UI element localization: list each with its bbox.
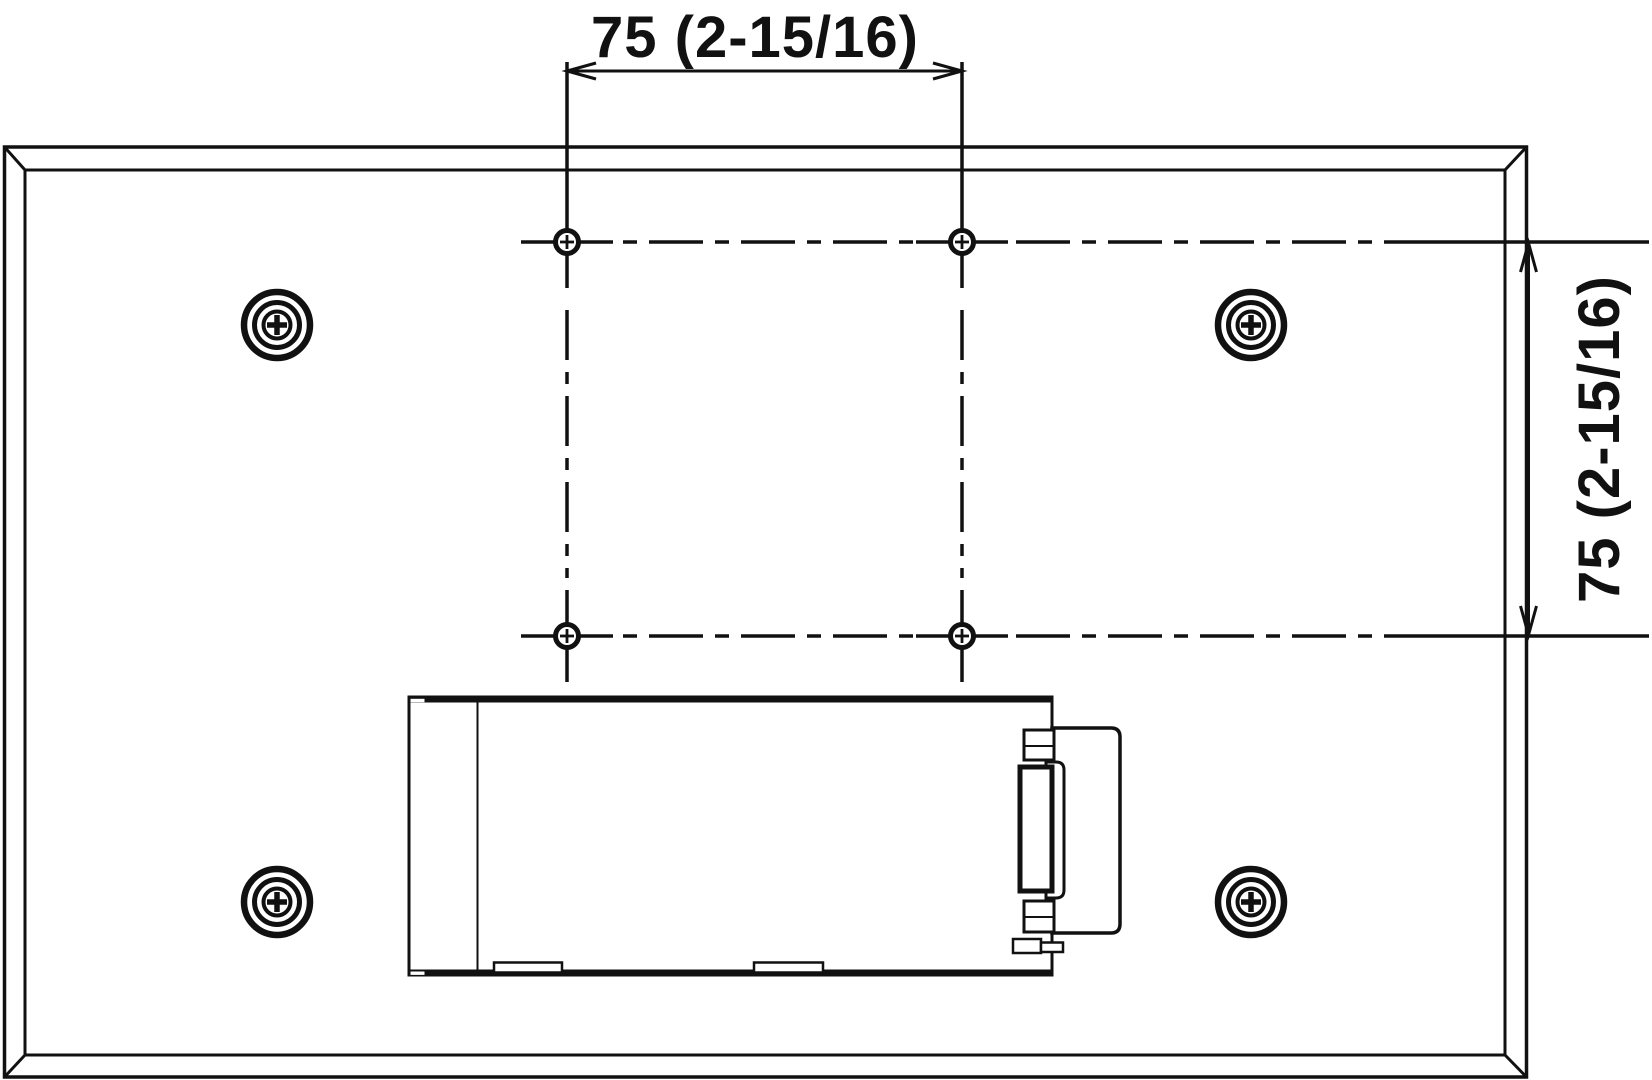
connector-bay-outline (409, 697, 1052, 975)
bottom-tab-right (1013, 939, 1041, 953)
dimension-label-horizontal: 75 (2-15/16) (591, 5, 919, 70)
chamfer-top-left-icon (5, 147, 26, 170)
connector-bay-top-edge (409, 697, 1052, 703)
vesa-hole-bottom-left-icon (521, 590, 613, 682)
bottom-tab-left (494, 963, 562, 973)
vesa-hole-top-left-icon (521, 196, 613, 288)
vesa-hole-bottom-right-icon (916, 590, 1008, 682)
bottom-step-right (1041, 943, 1063, 953)
chamfer-bottom-right-icon (1505, 1055, 1527, 1077)
dsub-connector (1020, 728, 1120, 933)
bottom-tab-center (754, 963, 823, 973)
dimension-label-vertical: 75 (2-15/16) (1567, 275, 1632, 603)
technical-drawing-svg: 75 (2-15/16) 75 (2-15/16) (0, 0, 1652, 1080)
vesa-holes (521, 196, 1008, 682)
screw-bottom-right-icon (1218, 869, 1284, 935)
technical-drawing: 75 (2-15/16) 75 (2-15/16) (0, 0, 1652, 1080)
edge-notch (411, 972, 425, 975)
screw-top-right-icon (1218, 292, 1284, 358)
chamfer-bottom-left-icon (5, 1055, 26, 1077)
connector-face-plate (1020, 767, 1052, 891)
chamfer-top-right-icon (1505, 147, 1527, 170)
connector-bay (409, 697, 1063, 976)
screw-top-left-icon (244, 292, 310, 358)
dimension-vertical (1521, 242, 1537, 636)
vesa-hole-top-right-icon (916, 196, 1008, 288)
screw-bottom-left-icon (244, 869, 310, 935)
edge-notch (411, 699, 425, 702)
